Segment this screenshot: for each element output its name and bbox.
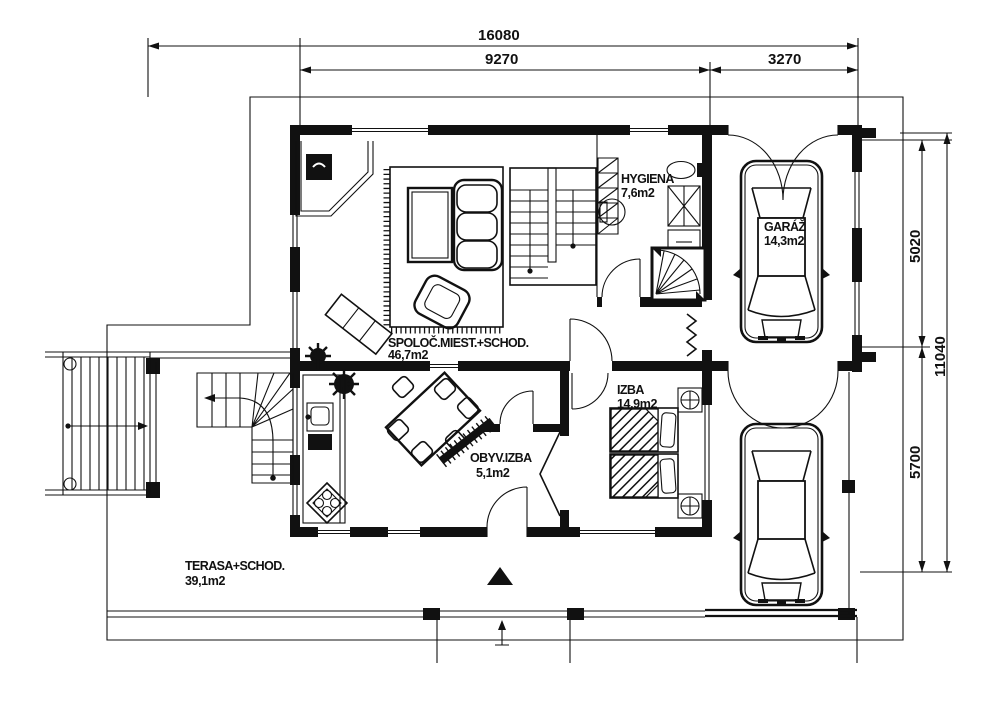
label-hygiene-name: HYGIENA xyxy=(621,172,674,186)
vestibule-top-door xyxy=(500,391,533,424)
armchair xyxy=(411,272,473,332)
exterior-stair-post-2 xyxy=(64,478,76,490)
car-driveway xyxy=(733,424,830,605)
main-staircase xyxy=(510,168,596,285)
label-vestibule-name: OBYV.IZBA xyxy=(470,451,532,465)
entry-steps xyxy=(495,620,509,645)
floor-plan-canvas: 16080 9270 3270 5020 11040 5700 xyxy=(0,0,1000,706)
desk xyxy=(325,294,391,354)
kitchen-sink-basin xyxy=(311,407,329,425)
toilet-tank xyxy=(697,163,705,177)
kitchen-floor-ornament xyxy=(307,483,347,523)
floor-plan-drawing: 16080 9270 3270 5020 11040 5700 xyxy=(0,0,1000,706)
winder-dot xyxy=(270,475,276,481)
terrace xyxy=(45,352,705,645)
entrance-door xyxy=(487,487,527,527)
doors xyxy=(487,135,838,527)
kitchen xyxy=(303,375,347,523)
coffee-table-inner xyxy=(412,192,448,258)
window-gaps xyxy=(290,125,862,537)
vestibule-swing-doors xyxy=(540,432,560,516)
exterior-stair xyxy=(45,352,156,495)
entry-arrow xyxy=(498,620,506,630)
bed-2-pillow xyxy=(660,459,676,494)
armchair-cushion xyxy=(423,283,462,321)
bed-2 xyxy=(610,454,678,498)
kitchen-faucet xyxy=(305,414,310,419)
bed-1 xyxy=(610,408,678,452)
carport-double-door xyxy=(728,371,838,428)
label-living-area: 46,7m2 xyxy=(388,348,428,362)
fireplace xyxy=(296,141,373,216)
ornament-dot-4 xyxy=(315,499,324,508)
coffee-table xyxy=(408,188,452,262)
hygiene-door xyxy=(602,259,640,297)
label-hygiene-area: 7,6m2 xyxy=(621,186,655,200)
window-mullions xyxy=(293,125,859,537)
exterior-stair-post-1 xyxy=(64,358,76,370)
exterior-stair-arrow xyxy=(138,422,148,430)
nightstand-1 xyxy=(678,388,702,412)
plant-2-leaves xyxy=(329,369,359,399)
dining-chair-1 xyxy=(391,375,415,399)
label-terrace-area: 39,1m2 xyxy=(185,574,225,588)
exterior-stair-treads xyxy=(72,357,144,490)
nightstand-2 xyxy=(678,494,702,518)
shaft-hatch xyxy=(598,158,618,234)
dining-set xyxy=(386,373,480,466)
stair-spine xyxy=(548,168,556,262)
carport-bottom-edge xyxy=(705,610,857,616)
stair-walklines xyxy=(530,190,573,270)
winder-stair xyxy=(197,373,293,483)
label-garage-name: GARÁŽ xyxy=(764,219,806,234)
label-vestibule-area: 5,1m2 xyxy=(476,466,510,480)
label-bedroom-name: IZBA xyxy=(617,383,644,397)
dim-right-upper: 5020 xyxy=(907,230,924,263)
bedroom-door xyxy=(572,373,608,409)
car-driveway-shape xyxy=(733,424,830,605)
garage-folding-door xyxy=(687,314,696,356)
sofa xyxy=(454,180,502,270)
car-garage-shape xyxy=(733,161,830,342)
dining-chair-5 xyxy=(410,440,434,464)
bed-1-blanket xyxy=(611,409,658,451)
fireplace-stove xyxy=(306,154,332,180)
exterior-stair-dot xyxy=(65,423,70,428)
label-terrace-name: TERASA+SCHOD. xyxy=(185,559,285,573)
dim-top-total: 16080 xyxy=(478,27,520,44)
sofa-cushion-1 xyxy=(457,185,497,212)
stair-walkline-dot2 xyxy=(570,243,575,248)
sofa-cushion-2 xyxy=(457,213,497,240)
dim-top-garage: 3270 xyxy=(768,51,801,68)
kitchen-stove xyxy=(308,434,332,450)
plant-2 xyxy=(329,369,359,399)
windows xyxy=(290,125,862,537)
dimension-lines-top: 16080 9270 3270 xyxy=(148,27,858,125)
label-bedroom-area: 14,9m2 xyxy=(617,397,657,411)
stair-walkline-dot xyxy=(527,268,532,273)
hall-door xyxy=(570,319,612,361)
ornament-dot-3 xyxy=(323,507,332,516)
desk-lines xyxy=(343,308,376,341)
car-garage xyxy=(733,161,830,342)
shower xyxy=(652,248,705,300)
armchair-body xyxy=(411,272,473,332)
washing-machine-mark xyxy=(668,186,700,226)
winder-arrow xyxy=(204,394,215,402)
entrance-marker-triangle xyxy=(487,567,513,585)
label-garage-area: 14,3m2 xyxy=(764,234,804,248)
dim-right-total: 11040 xyxy=(932,336,949,377)
dim-right-lower: 5700 xyxy=(907,446,924,479)
bed-1-pillow xyxy=(660,413,676,448)
dim-top-main: 9270 xyxy=(485,51,518,68)
bed-2-blanket xyxy=(611,455,658,497)
ornament-dot-2 xyxy=(331,499,340,508)
dining-chairs xyxy=(386,375,480,464)
sofa-body xyxy=(454,180,502,270)
sofa-cushion-3 xyxy=(457,241,497,268)
ornament-dot-1 xyxy=(323,491,332,500)
stair-treads xyxy=(510,190,596,278)
desk-top xyxy=(325,294,391,354)
